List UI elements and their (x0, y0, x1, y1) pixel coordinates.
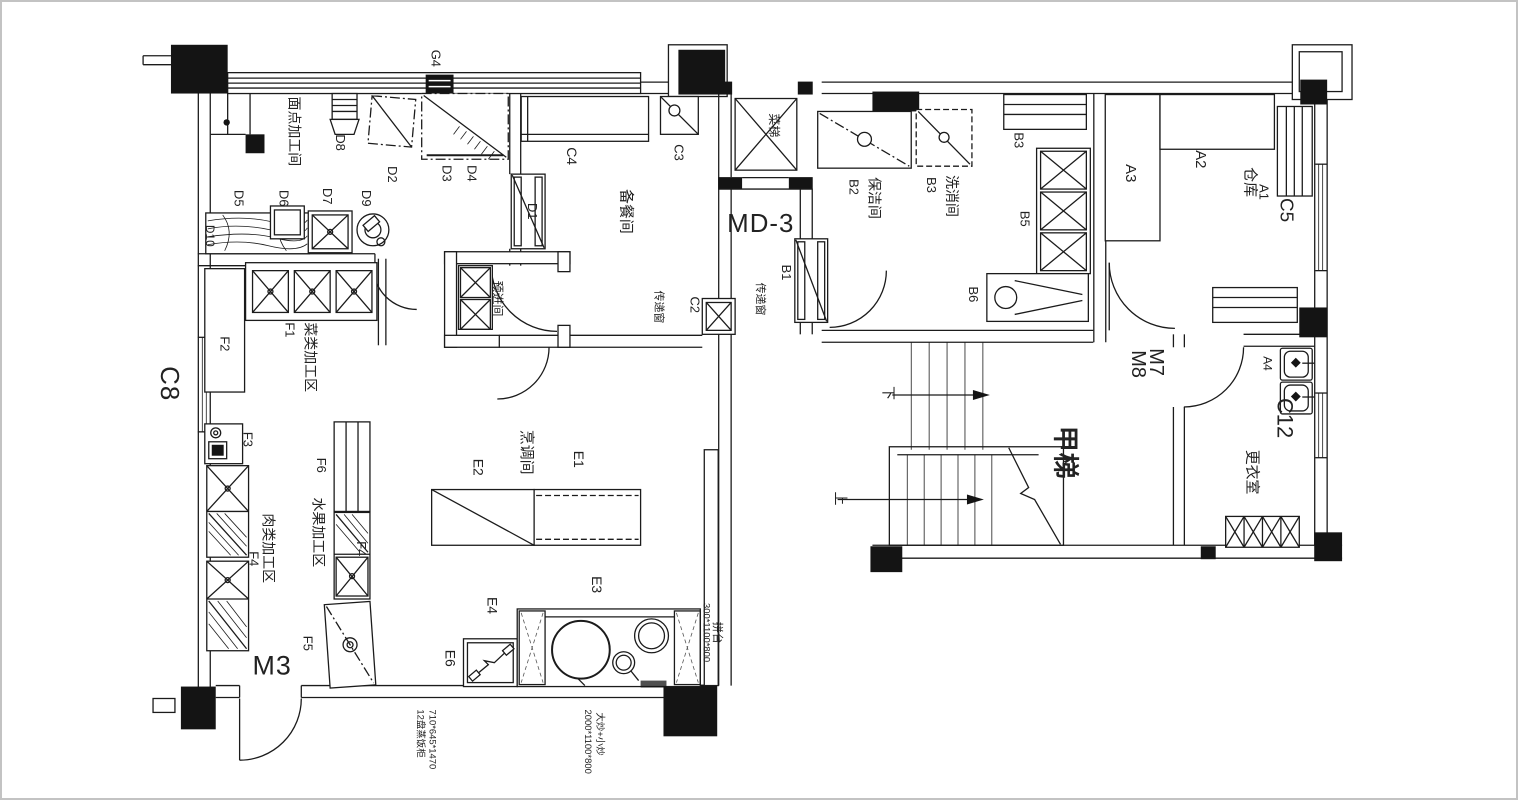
label-c4: C4 (564, 147, 580, 165)
label-d9: D9 (359, 190, 374, 207)
label-room-locker: 更衣室 (1244, 450, 1261, 495)
label-d10: D10 (203, 225, 217, 247)
label-f2: F2 (218, 336, 233, 351)
label-e3: E3 (589, 576, 605, 593)
label-stair-down: 下 (880, 386, 896, 400)
label-b1: B1 (779, 265, 794, 281)
vestibule (445, 252, 570, 348)
label-d3: D3 (440, 165, 455, 182)
label-a2: A2 (1192, 150, 1209, 168)
label-b5: B5 (1018, 211, 1033, 227)
label-room-cleaning: 保洁间 (866, 177, 882, 219)
label-zone-meat: 肉类加工区 (260, 513, 276, 583)
label-a4: A4 (1260, 356, 1274, 371)
food-lift (718, 99, 813, 190)
label-d1: D1 (525, 203, 540, 220)
note-side-table-size: 300*1100*800 (700, 603, 711, 662)
equipment-locker-room (1226, 348, 1315, 547)
label-d8: D8 (333, 134, 348, 151)
label-c2: C2 (687, 297, 702, 314)
label-stair-up: 上 (833, 492, 849, 506)
label-c8: C8 (155, 366, 183, 401)
label-room-pre-entry: 预进间 (490, 281, 504, 317)
label-e1: E1 (571, 451, 587, 468)
label-d2: D2 (385, 166, 400, 183)
label-room-prep: 备餐间 (618, 189, 635, 234)
stairs (838, 342, 1064, 545)
label-stair-name: 甲梯 (1051, 426, 1080, 480)
label-e6: E6 (443, 650, 459, 667)
label-a1: A1 (1256, 184, 1271, 200)
label-pass-window-a: 传递窗 (754, 283, 768, 316)
label-d5: D5 (232, 190, 247, 207)
label-fire-door-md3: MD-3 (727, 210, 794, 238)
label-pass-window-b: 传递窗 (653, 291, 667, 324)
label-room-warehouse: 仓库 (1242, 167, 1259, 197)
label-door-m8: M8 (1127, 350, 1149, 378)
label-a3: A3 (1122, 164, 1139, 182)
label-zone-fruit: 水果加工区 (310, 498, 326, 568)
label-d6: D6 (276, 190, 291, 207)
note-wok-name: 大炒+小炒 (594, 712, 606, 756)
label-room-pastry: 面点加工间 (286, 97, 302, 167)
label-door-m3: M3 (253, 651, 292, 681)
note-side-table: 拼台 (711, 622, 725, 644)
label-zone-veg: 菜类加工区 (302, 322, 318, 392)
label-b2: B2 (847, 179, 862, 195)
label-f6: F6 (314, 458, 329, 473)
label-f5: F5 (300, 636, 315, 651)
label-f3: F3 (241, 432, 256, 447)
equipment-prep-room (521, 97, 698, 142)
note-steamer-name: 12盘蒸饭柜 (415, 709, 427, 757)
floor-plan-svg: G4 面点加工间 D8 D2 D3 D4 D5 D6 D7 D9 D10 D1 … (2, 2, 1516, 798)
label-room-cooking: 烹调间 (518, 430, 536, 475)
label-c5: C5 (1275, 198, 1296, 222)
drawing-sheet: G4 面点加工间 D8 D2 D3 D4 D5 D6 D7 D9 D10 D1 … (0, 0, 1518, 800)
label-c3: C3 (671, 144, 686, 161)
label-room-sterilize: 洗消间 (944, 175, 960, 217)
label-b3: B3 (924, 177, 939, 193)
equipment-pastry-room (206, 94, 508, 254)
note-steamer-size: 710*645*1470 (427, 709, 438, 769)
label-f4-left: F4 (247, 551, 262, 566)
label-b6: B6 (966, 287, 981, 303)
label-e4: E4 (484, 597, 500, 614)
label-c12: C12 (1272, 398, 1297, 438)
label-d4: D4 (464, 165, 479, 182)
label-f1: F1 (282, 322, 297, 337)
note-wok-size: 2000*1100*800 (582, 709, 593, 773)
label-b3-rack: B3 (1012, 132, 1027, 148)
label-f4-right: F4 (354, 541, 369, 556)
label-food-lift: 菜梯 (767, 113, 781, 137)
label-e2: E2 (470, 459, 486, 476)
label-g4: G4 (429, 50, 444, 67)
label-d7: D7 (320, 188, 335, 205)
